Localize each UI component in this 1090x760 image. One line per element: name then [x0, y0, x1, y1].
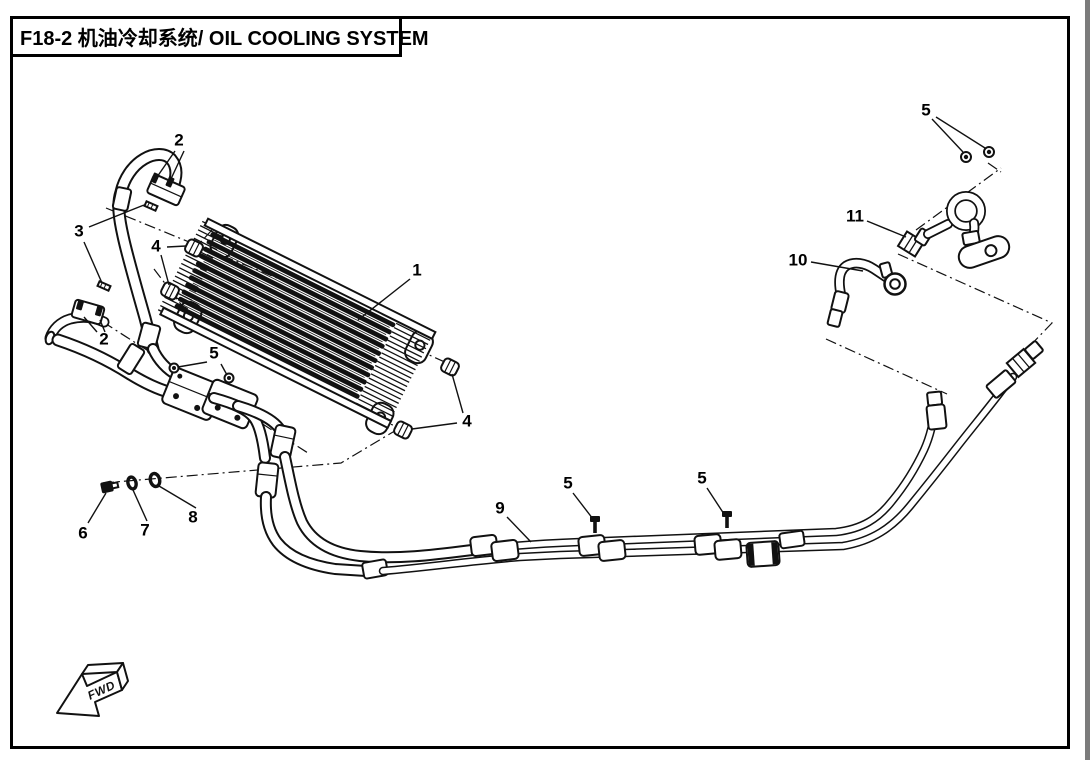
right-edge-strip — [1085, 0, 1090, 760]
diagram-border — [10, 16, 1070, 749]
parts-diagram-page: FWD 123425467895510115 F18-2 机油冷却系统/ OIL… — [0, 0, 1090, 760]
page-title-text: F18-2 机油冷却系统/ OIL COOLING SYSTEM — [20, 22, 429, 51]
page-title: F18-2 机油冷却系统/ OIL COOLING SYSTEM — [10, 16, 402, 57]
